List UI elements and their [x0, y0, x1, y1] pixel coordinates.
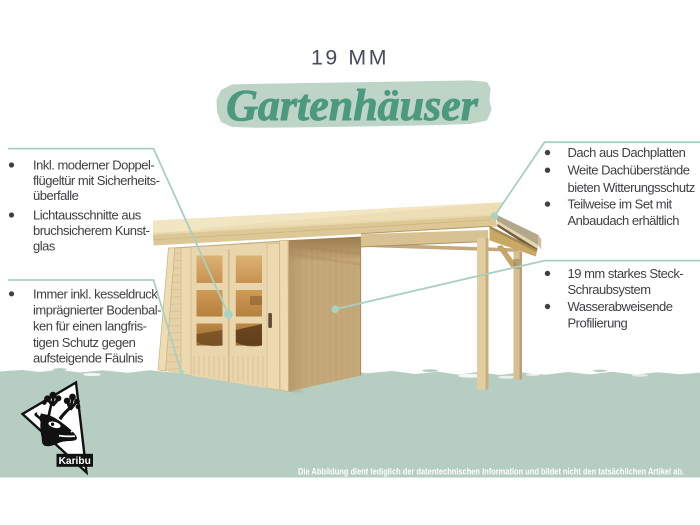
svg-text:Dach aus Dachplatten: Dach aus Dachplatten [568, 145, 686, 160]
svg-text:tigen Schutz gegen: tigen Schutz gegen [33, 335, 136, 350]
svg-text:glas: glas [33, 238, 56, 253]
svg-text:Immer inkl. kesseldruck: Immer inkl. kesseldruck [33, 286, 158, 301]
svg-text:Weite Dachüberstände: Weite Dachüberstände [568, 163, 690, 178]
svg-text:bruchsicherem Kunst-: bruchsicherem Kunst- [33, 223, 150, 238]
svg-text:Karibu: Karibu [59, 456, 91, 467]
svg-text:Inkl. moderner Doppel-: Inkl. moderner Doppel- [33, 158, 154, 173]
svg-text:Teilweise im Set mit: Teilweise im Set mit [568, 197, 673, 212]
svg-text:Die Abbildung dient lediglich: Die Abbildung dient lediglich der datent… [298, 467, 684, 477]
svg-text:Lichtausschnitte aus: Lichtausschnitte aus [33, 208, 142, 223]
svg-text:flügeltür mit Sicherheits-: flügeltür mit Sicherheits- [33, 173, 160, 188]
svg-text:imprägnierter Bodenbal-: imprägnierter Bodenbal- [33, 302, 161, 317]
svg-text:19 mm starkes Steck-: 19 mm starkes Steck- [568, 266, 684, 281]
svg-text:Schraubsystem: Schraubsystem [568, 282, 651, 297]
svg-text:ken für einen langfris-: ken für einen langfris- [33, 319, 147, 334]
svg-text:Profilierung: Profilierung [568, 316, 628, 331]
svg-text:19 MM: 19 MM [311, 46, 389, 70]
svg-text:Wasserabweisende: Wasserabweisende [568, 299, 673, 314]
svg-text:Anbaudach erhältlich: Anbaudach erhältlich [568, 213, 680, 228]
svg-text:aufsteigende Fäulnis: aufsteigende Fäulnis [33, 351, 144, 366]
svg-text:überfalle: überfalle [33, 188, 79, 203]
svg-text:bieten Witterungsschutz: bieten Witterungsschutz [568, 180, 695, 195]
svg-text:Gartenhäuser: Gartenhäuser [226, 81, 479, 130]
